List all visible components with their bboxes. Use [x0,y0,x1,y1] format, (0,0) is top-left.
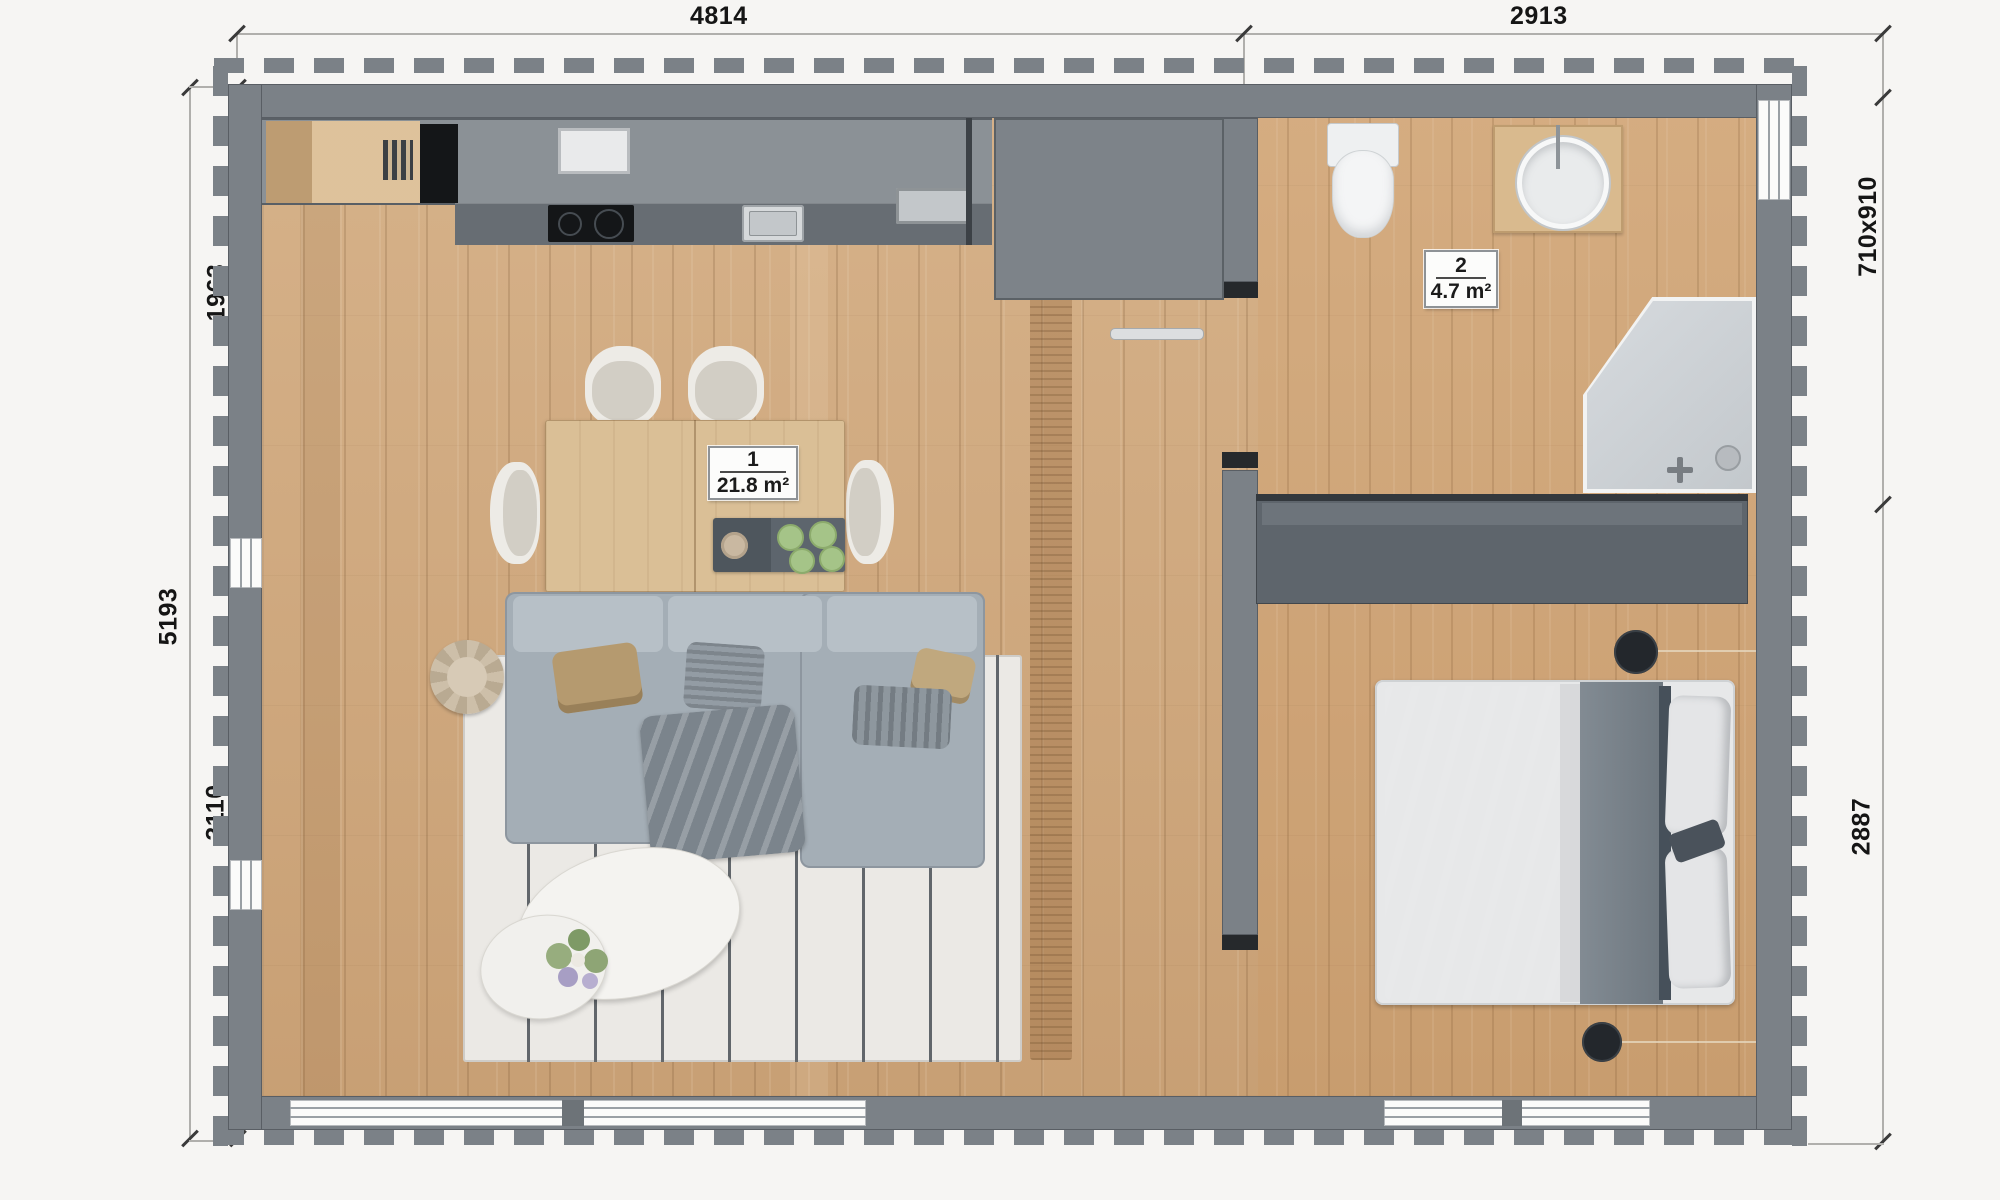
dim-ext-top-left [236,33,238,59]
dim-line-left-outer [189,86,191,1142]
wall-hatch-bottom [214,1130,1806,1145]
dining-chair [846,460,894,564]
appliance-grille [383,140,413,180]
sheet-fold [1560,684,1580,1002]
wall-interior-lower [1222,470,1258,935]
dim-label-2887: 2887 [1847,798,1876,856]
tall-cabinet-block [994,118,1224,300]
window-mullion [562,1100,584,1126]
cutting-board [558,128,630,174]
burner-icon [594,209,624,239]
duvet-purple [1385,686,1560,1000]
throw-pillow-knit [683,641,765,712]
serving-tray [713,518,845,572]
dim-line-top [237,33,1883,35]
room-area: 21.8 m² [710,473,796,498]
duvet-gray [1580,682,1663,1004]
bathroom-door-frame-top [1222,282,1258,298]
wardrobe [1256,494,1748,604]
wall-hatch-left [213,58,228,1146]
wall-interior-upper [1222,118,1258,282]
bedroom-door-frame [1222,935,1258,950]
sofa [505,592,985,868]
shower-drain-icon [1715,445,1741,471]
pendant-lamp-icon [1582,1022,1622,1062]
chair-seat [592,361,654,421]
pillow [1665,847,1732,989]
dim-ext-top-right [1882,33,1884,61]
cup-icon [721,532,748,559]
floor-plan-canvas: 4814 2913 5193 1963 3110 710x910 2887 [0,0,2000,1200]
lamp-cable [1658,650,1756,652]
lamp-cable [1622,1041,1756,1043]
window-mullion [1502,1100,1522,1126]
kitchen-black-unit [420,124,458,203]
burner-icon [558,212,582,236]
dim-label-2913: 2913 [1510,2,1568,31]
cucumber-icon [789,548,815,574]
pouf [430,640,504,714]
kitchen-sink [742,205,804,242]
window-right-710x910 [1758,100,1790,200]
cucumber-icon [819,546,845,572]
room-label-1: 1 21.8 m² [708,446,798,500]
toilet-bowl [1332,150,1394,238]
dim-label-5193: 5193 [154,588,183,646]
vanity-cabinet [1493,125,1623,233]
pillow [1665,695,1732,837]
bathroom-door-frame-bottom [1222,452,1258,468]
dim-label-4814: 4814 [690,2,748,31]
kitchen-appliance-tray [896,188,972,224]
wall-left [228,84,262,1130]
room-label-2: 2 4.7 m² [1424,250,1498,308]
cucumber-icon [809,521,837,549]
flower-vase [538,923,622,1007]
window-left-lower [230,860,262,910]
chair-seat [503,470,537,556]
towel-rail [1110,328,1204,340]
sofa-back-cushion [827,596,977,652]
chair-seat [695,361,757,421]
wall-hatch-right [1792,58,1807,1146]
sofa-back-cushion [513,596,663,652]
dim-label-710x910: 710x910 [1854,176,1883,277]
double-bed [1375,680,1735,1005]
dining-chair [688,346,764,426]
wardrobe-front-band [1262,503,1742,525]
table-seam [694,420,696,592]
dining-chair [585,346,661,426]
wall-right [1756,84,1792,1130]
cooktop [548,205,634,242]
shower-faucet-icon [1677,457,1683,483]
room-area: 4.7 m² [1426,279,1496,304]
basin-icon [1517,137,1609,229]
counter-end-seam [966,118,972,245]
pendant-lamp-icon [1614,630,1658,674]
room-number: 1 [720,448,786,473]
wall-hatch-top [214,58,1806,73]
pouf-top [447,657,487,697]
window-left-upper [230,538,262,588]
coffee-table-group [480,845,740,1025]
room-number: 2 [1436,254,1486,279]
dining-chair [490,462,540,564]
wall-top [228,84,1792,118]
chaise-pillow-striped [851,684,952,749]
throw-blanket [639,704,806,865]
chair-seat [849,468,881,556]
sink-basin [749,211,797,236]
cucumber-icon [777,524,804,551]
dim-connector [1808,1143,1884,1145]
faucet-icon [1556,125,1560,169]
throw-pillow-tan [551,641,644,714]
wardrobe-back-edge [1256,494,1748,501]
